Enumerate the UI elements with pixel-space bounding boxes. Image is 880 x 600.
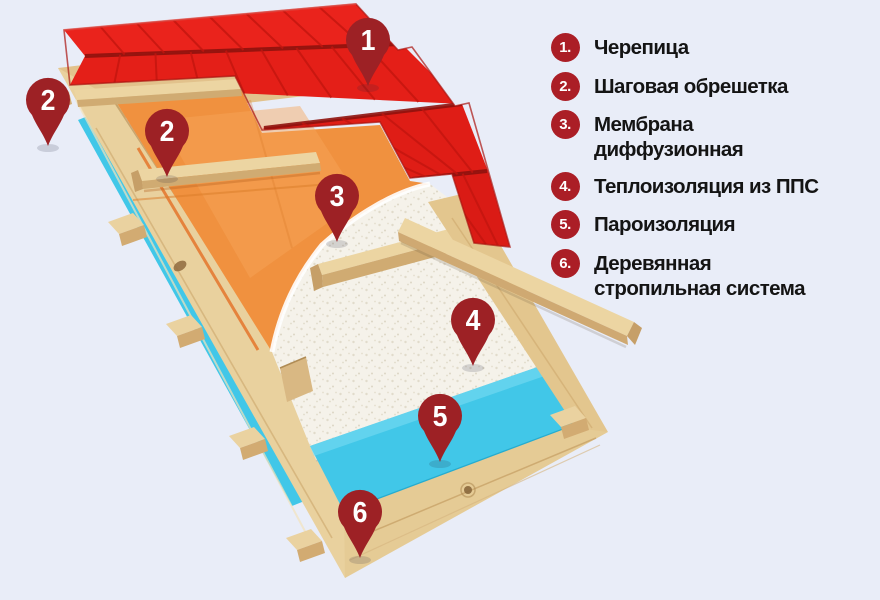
- legend-item-label: Теплоизоляция из ППС: [594, 172, 818, 199]
- legend: 1.Черепица2.Шаговая обрешетка3.Мембрана …: [551, 33, 851, 310]
- legend-item-1: 1.Черепица: [551, 33, 851, 62]
- legend-number-badge: 6.: [551, 249, 580, 278]
- wood-knot: [464, 486, 472, 494]
- infographic-canvas: 1223456 1.Черепица2.Шаговая обрешетка3.М…: [0, 0, 880, 600]
- legend-number-badge: 3.: [551, 110, 580, 139]
- pin-number: 2: [41, 84, 56, 116]
- pin-number: 1: [361, 24, 376, 56]
- legend-number-badge: 4.: [551, 172, 580, 201]
- legend-item-3: 3.Мембрана диффузионная: [551, 110, 851, 162]
- pin-number: 3: [330, 180, 345, 212]
- pin-number: 5: [433, 400, 448, 432]
- legend-item-label: Пароизоляция: [594, 210, 735, 237]
- legend-item-5: 5.Пароизоляция: [551, 210, 851, 239]
- legend-number-badge: 5.: [551, 210, 580, 239]
- legend-number-badge: 2.: [551, 72, 580, 101]
- pin-number: 4: [466, 304, 481, 336]
- legend-item-label: Шаговая обрешетка: [594, 72, 788, 99]
- pin-number: 2: [160, 115, 175, 147]
- legend-item-2: 2.Шаговая обрешетка: [551, 72, 851, 101]
- legend-item-label: Мембрана диффузионная: [594, 110, 838, 162]
- pin-number: 6: [353, 496, 368, 528]
- legend-item-label: Деревянная стропильная система: [594, 249, 838, 301]
- legend-item-6: 6.Деревянная стропильная система: [551, 249, 851, 301]
- legend-number-badge: 1.: [551, 33, 580, 62]
- legend-item-4: 4.Теплоизоляция из ППС: [551, 172, 851, 201]
- legend-item-label: Черепица: [594, 33, 689, 60]
